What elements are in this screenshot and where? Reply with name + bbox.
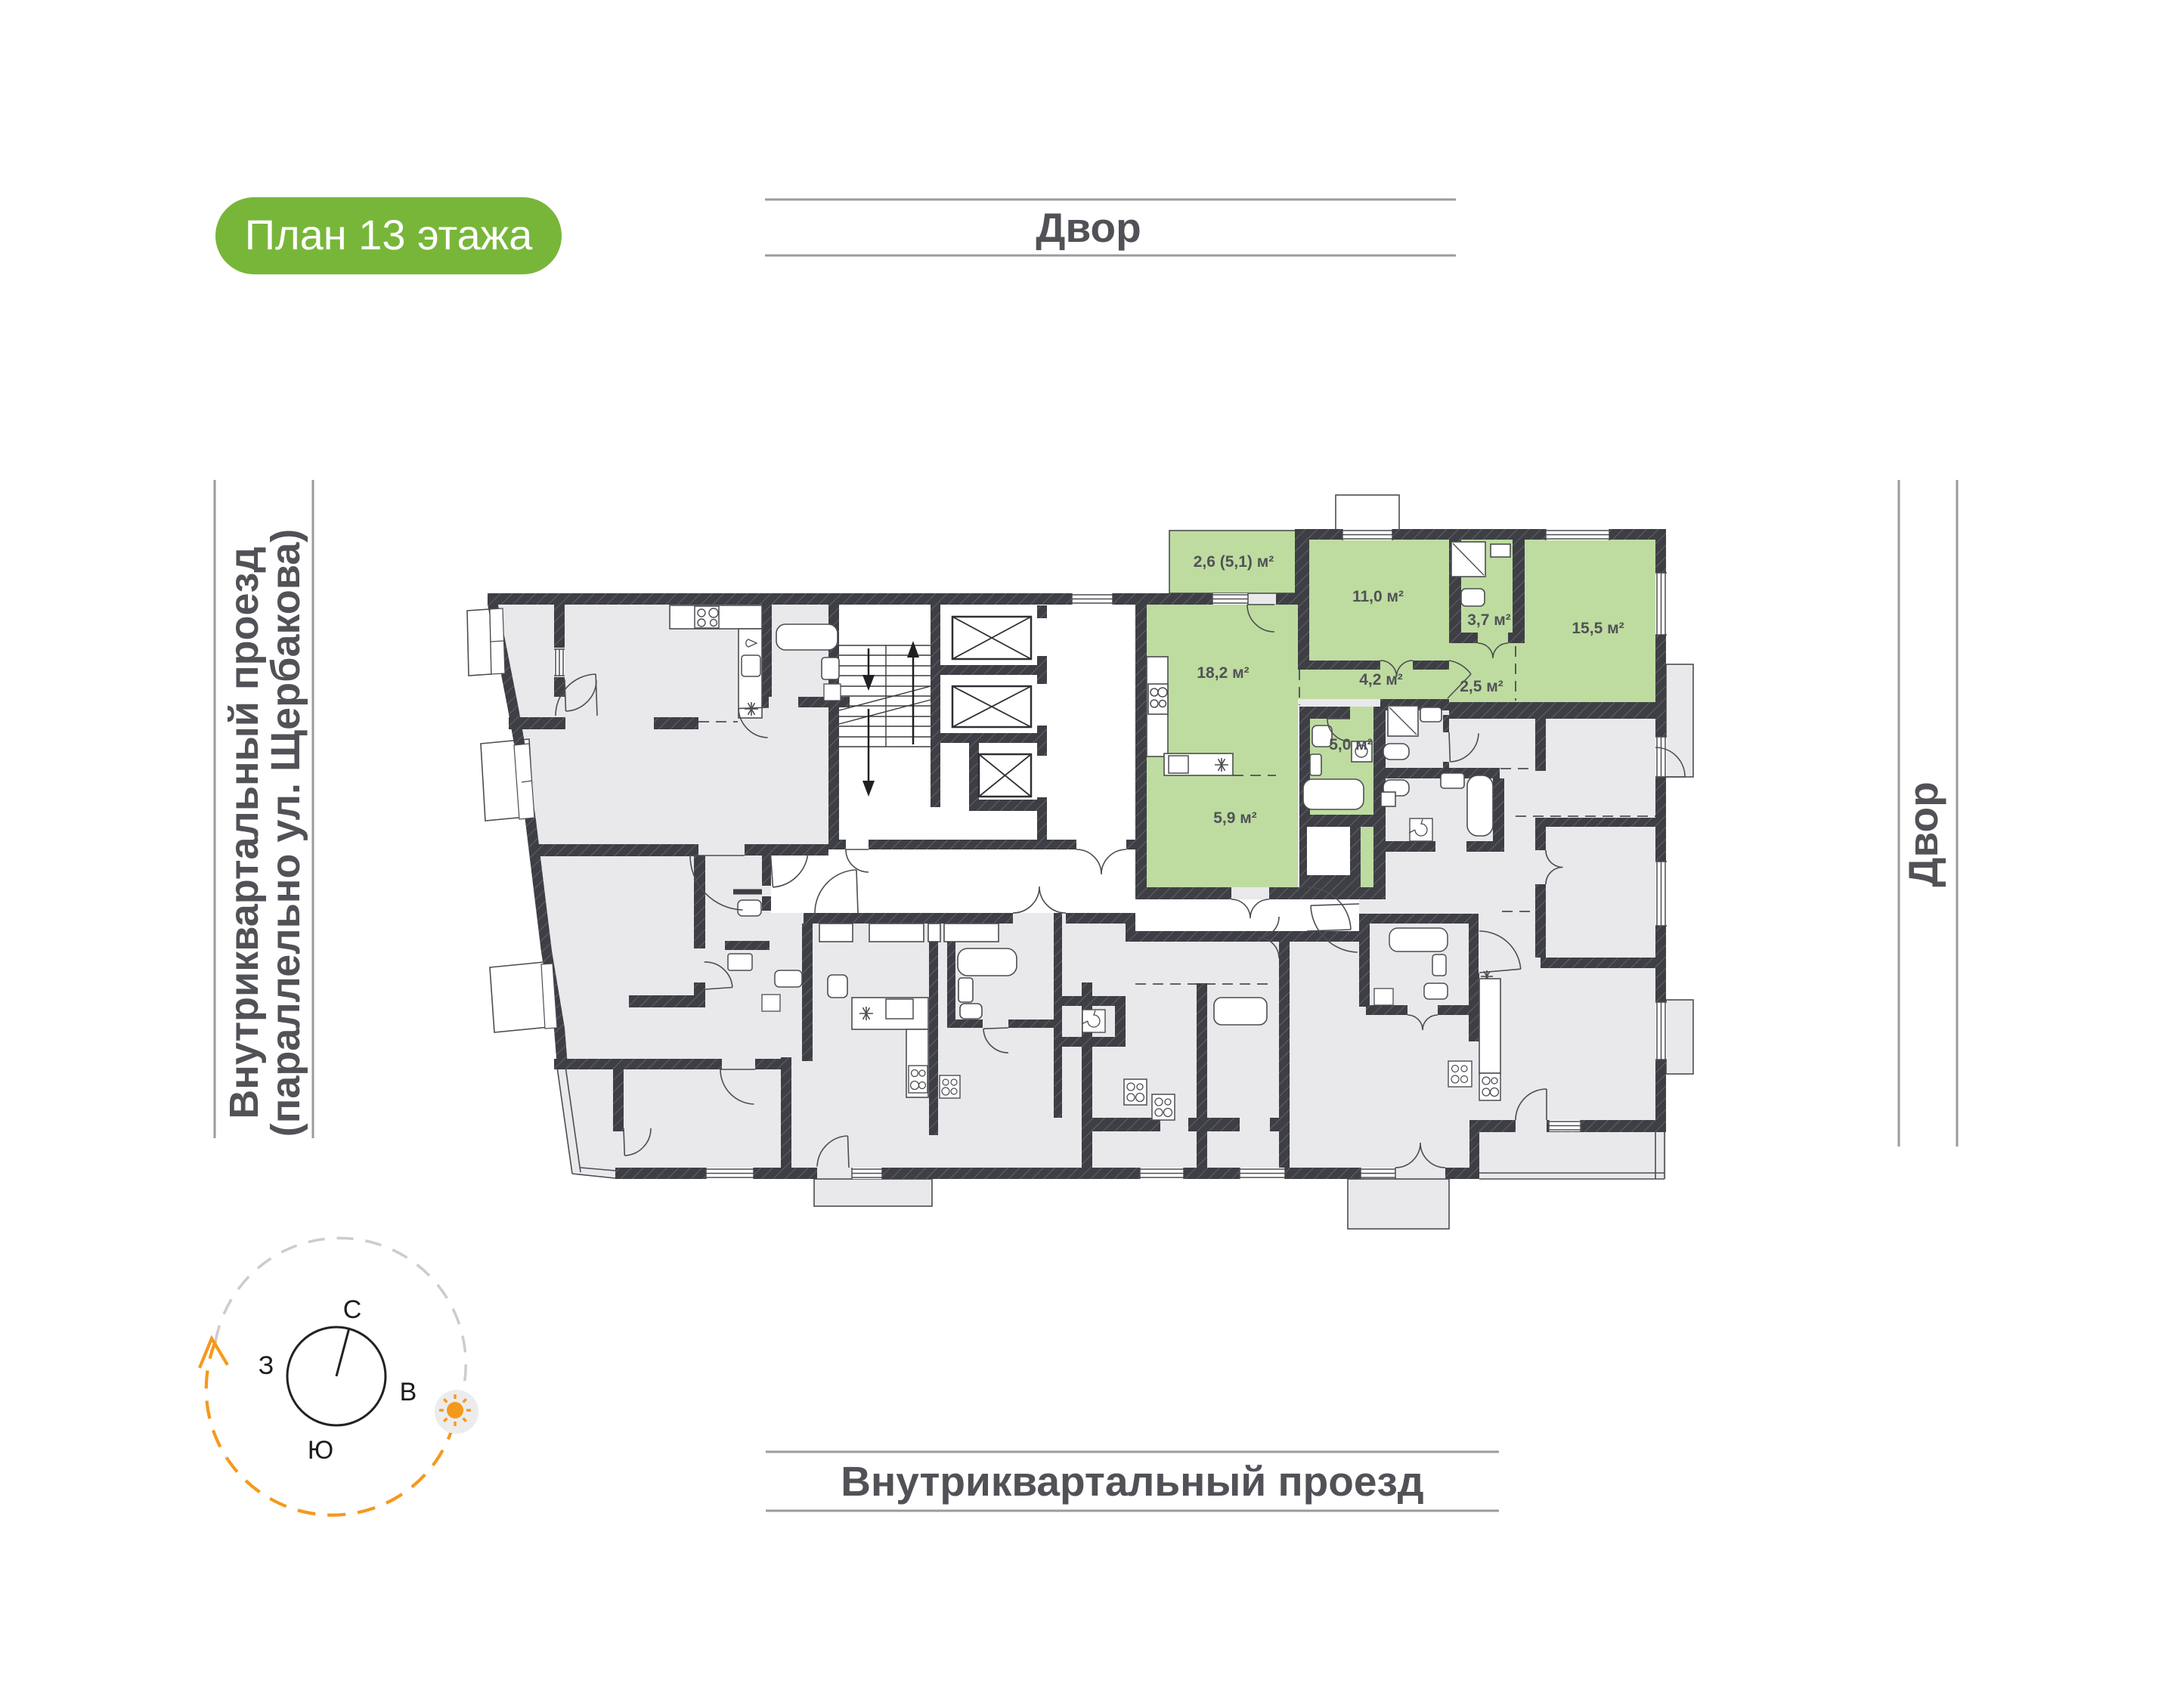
svg-text:Двор: Двор bbox=[1900, 781, 1946, 886]
svg-text:5,0 м²: 5,0 м² bbox=[1329, 736, 1373, 753]
svg-text:15,5 м²: 15,5 м² bbox=[1572, 620, 1624, 637]
svg-text:Внутриквартальный проезд: Внутриквартальный проезд bbox=[221, 546, 267, 1119]
svg-text:Двор: Двор bbox=[1036, 204, 1141, 251]
svg-text:2,5 м²: 2,5 м² bbox=[1460, 678, 1503, 695]
svg-text:С: С bbox=[343, 1295, 362, 1324]
svg-text:В: В bbox=[400, 1378, 417, 1406]
svg-text:11,0 м²: 11,0 м² bbox=[1352, 588, 1404, 605]
svg-text:(параллельно ул. Щербакова): (параллельно ул. Щербакова) bbox=[263, 529, 308, 1137]
svg-text:2,6 (5,1) м²: 2,6 (5,1) м² bbox=[1194, 553, 1274, 571]
svg-text:3,7 м²: 3,7 м² bbox=[1467, 611, 1511, 629]
svg-text:4,2 м²: 4,2 м² bbox=[1359, 671, 1403, 688]
svg-text:Ю: Ю bbox=[308, 1436, 333, 1465]
svg-text:5,9 м²: 5,9 м² bbox=[1213, 809, 1257, 827]
svg-text:18,2 м²: 18,2 м² bbox=[1197, 664, 1249, 682]
svg-text:План 13 этажа: План 13 этажа bbox=[245, 211, 533, 258]
svg-text:З: З bbox=[259, 1351, 274, 1380]
svg-text:Внутриквартальный проезд: Внутриквартальный проезд bbox=[841, 1458, 1423, 1505]
